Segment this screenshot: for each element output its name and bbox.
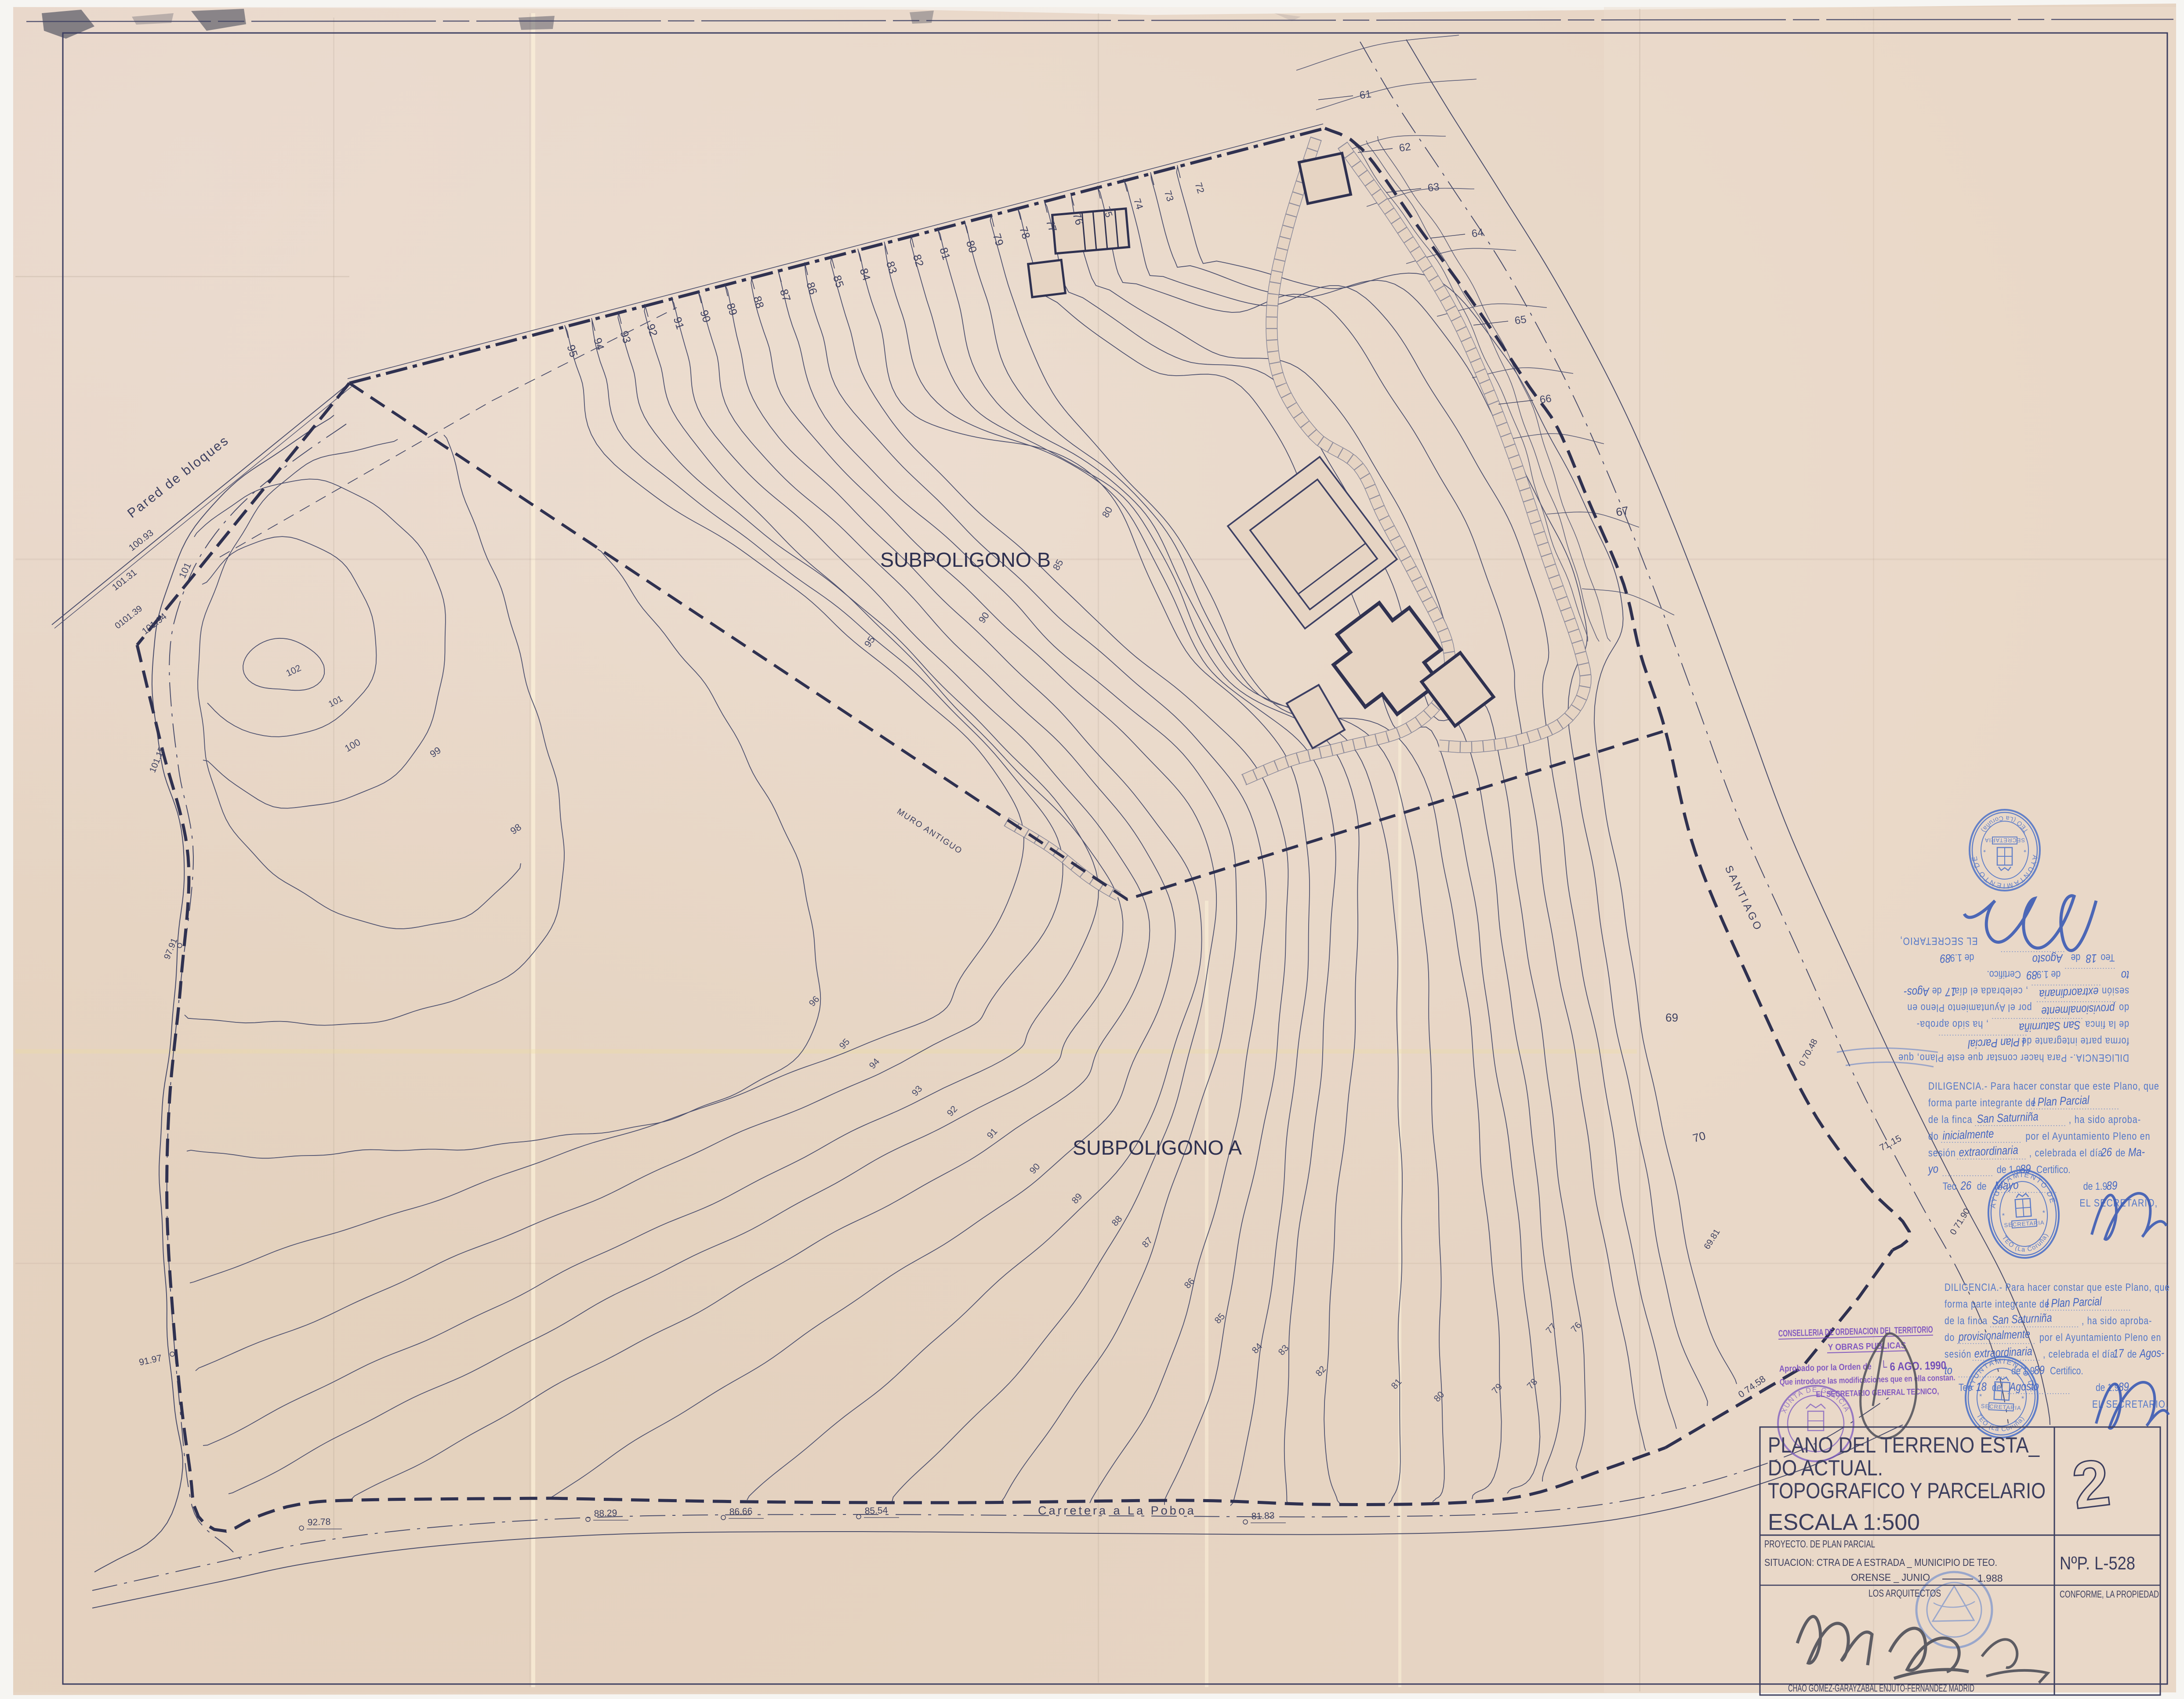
svg-text:San Saturniña: San Saturniña	[1977, 1110, 2039, 1126]
svg-text:*: *	[2002, 1212, 2005, 1220]
svg-text:*: *	[1979, 1393, 1982, 1400]
svg-text:de: de	[2071, 952, 2080, 964]
svg-text:l Plan Parcial: l Plan Parcial	[2046, 1295, 2102, 1310]
svg-text:Y OBRAS PUBLICAS: Y OBRAS PUBLICAS	[1828, 1340, 1906, 1352]
svg-text:NºP. L-528: NºP. L-528	[2060, 1553, 2135, 1573]
svg-text:sesión: sesión	[1928, 1147, 1956, 1159]
svg-text:Agosto: Agosto	[2009, 1380, 2039, 1394]
svg-text:Mayo: Mayo	[1995, 1179, 2019, 1193]
svg-text:*: *	[1983, 846, 1986, 853]
svg-text:18: 18	[2086, 951, 2097, 965]
svg-text:63: 63	[1427, 181, 1440, 194]
svg-text:de la finca: de la finca	[2085, 1019, 2129, 1031]
svg-text:San Saturniña: San Saturniña	[2019, 1018, 2081, 1033]
svg-text:26: 26	[1960, 1179, 1972, 1193]
svg-text:PROYECTO. DE PLAN PARCIAL: PROYECTO. DE PLAN PARCIAL	[1764, 1538, 1875, 1550]
svg-text:por el Ayuntamiento Pleno en: por el Ayuntamiento Pleno en	[1907, 1002, 2032, 1014]
svg-text:de la finca: de la finca	[1928, 1113, 1973, 1125]
svg-text:Certifico.: Certifico.	[1987, 969, 2021, 981]
svg-text:Teo: Teo	[1959, 1381, 1972, 1394]
svg-text:do: do	[2119, 1002, 2129, 1014]
svg-text:sesión: sesión	[2101, 985, 2129, 997]
svg-text:l Plan Parcial: l Plan Parcial	[1967, 1035, 2025, 1050]
svg-text:92.78: 92.78	[307, 1517, 330, 1528]
svg-text:DO ACTUAL.: DO ACTUAL.	[1768, 1456, 1883, 1480]
svg-text:17: 17	[1945, 985, 1956, 998]
svg-text:, celebrada el día: , celebrada el día	[2029, 1147, 2104, 1159]
svg-text:San Saturniña: San Saturniña	[1992, 1311, 2052, 1327]
svg-text:LOS ARQUITECTOS: LOS ARQUITECTOS	[1868, 1587, 1941, 1599]
svg-text:de: de	[1932, 985, 1942, 997]
svg-text:Ma-: Ma-	[2128, 1145, 2145, 1159]
svg-text:17: 17	[2113, 1347, 2124, 1361]
svg-text:62: 62	[1398, 141, 1411, 154]
svg-text:forma parte integrante de: forma parte integrante de	[1945, 1298, 2050, 1310]
svg-text:extraordinaria: extraordinaria	[2039, 985, 2099, 1000]
svg-text:18: 18	[1976, 1380, 1987, 1394]
svg-text:SITUACION: CTRA DE A ESTRA: SITUACION: CTRA DE A ESTRADA _ MUNICIPIO…	[1764, 1557, 1997, 1568]
svg-text:89: 89	[2034, 1364, 2045, 1377]
svg-text:de: de	[2127, 1348, 2137, 1360]
svg-text:*: *	[2024, 846, 2026, 853]
svg-text:inicialmente: inicialmente	[1942, 1127, 1994, 1142]
svg-text:Certifico.: Certifico.	[2050, 1365, 2083, 1377]
svg-text:de: de	[1977, 1180, 1987, 1192]
svg-text:de 1.9: de 1.9	[2083, 1180, 2108, 1192]
svg-text:69: 69	[1665, 1011, 1678, 1024]
svg-text:, celebrada el día: , celebrada el día	[1954, 985, 2028, 997]
svg-text:85.54: 85.54	[864, 1505, 888, 1516]
svg-text:DILIGENCIA.- Para hacer consta: DILIGENCIA.- Para hacer constar que este…	[1928, 1080, 2159, 1092]
svg-text:Teo: Teo	[2101, 952, 2115, 964]
svg-text:Agos-: Agos-	[2139, 1346, 2165, 1360]
svg-text:89: 89	[2106, 1179, 2118, 1193]
svg-text:*: *	[2021, 1395, 2024, 1402]
svg-text:ORENSE _ JUNIO: ORENSE _ JUNIO	[1851, 1572, 1930, 1583]
svg-text:de: de	[2115, 1147, 2125, 1159]
svg-text:extraordinaria: extraordinaria	[1974, 1345, 2032, 1361]
svg-text:do: do	[1928, 1130, 1939, 1142]
svg-text:de: de	[1992, 1381, 2001, 1394]
svg-text:extraordinaria: extraordinaria	[1959, 1144, 2018, 1159]
svg-text:Teo: Teo	[1943, 1180, 1957, 1192]
svg-text:SUBPOLIGONO B: SUBPOLIGONO B	[880, 548, 1051, 571]
svg-text:, ha sido aproba-: , ha sido aproba-	[2069, 1113, 2141, 1125]
svg-text:PLANO DEL TERRENO ESTA_: PLANO DEL TERRENO ESTA_	[1768, 1433, 2040, 1457]
svg-text:de 1.9: de 1.9	[1997, 1163, 2021, 1175]
svg-text:89: 89	[1940, 951, 1951, 965]
svg-text:, celebrada el día: , celebrada el día	[2043, 1348, 2115, 1360]
svg-text:Carretera a La Poboa: Carretera a La Poboa	[1038, 1504, 1196, 1517]
svg-text:67: 67	[1615, 504, 1630, 519]
svg-text:por el Ayuntamiento Pleno en: por el Ayuntamiento Pleno en	[2039, 1331, 2161, 1344]
svg-text:Agos-: Agos-	[1904, 985, 1930, 999]
svg-text:to: to	[2121, 968, 2129, 981]
svg-text:TOPOGRAFICO Y PARCELARIO: TOPOGRAFICO Y PARCELARIO	[1768, 1478, 2046, 1503]
svg-text:1.988: 1.988	[1977, 1572, 2003, 1584]
svg-text:EL SECRETARIO,: EL SECRETARIO,	[1900, 935, 1978, 947]
svg-text:*: *	[2042, 1210, 2045, 1217]
svg-text:to: to	[1944, 1364, 1952, 1377]
svg-text:65: 65	[1514, 313, 1527, 326]
svg-text:yo: yo	[1927, 1163, 1939, 1176]
svg-text:sesión: sesión	[1945, 1348, 1971, 1360]
svg-text:81.83: 81.83	[1251, 1511, 1274, 1521]
svg-text:61: 61	[1359, 88, 1372, 101]
svg-text:de 1.9: de 1.9	[1950, 952, 1974, 964]
svg-text:SUBPOLIGONO A: SUBPOLIGONO A	[1073, 1136, 1242, 1159]
svg-text:do: do	[1945, 1331, 1955, 1344]
svg-text:ESCALA 1:500: ESCALA 1:500	[1768, 1510, 1920, 1535]
svg-text:forma parte integrante de: forma parte integrante de	[1928, 1097, 2036, 1109]
svg-text:88.29: 88.29	[594, 1508, 617, 1519]
svg-text:89: 89	[2020, 1163, 2031, 1176]
svg-text:64: 64	[1471, 226, 1484, 239]
svg-text:de 1.9: de 1.9	[2011, 1365, 2035, 1377]
svg-text:por el Ayuntamiento Pleno en: por el Ayuntamiento Pleno en	[2025, 1130, 2150, 1142]
svg-text:de 1.9: de 1.9	[2037, 969, 2061, 981]
svg-text:SECRETARIA: SECRETARIA	[1984, 837, 2025, 844]
svg-text:de la finca: de la finca	[1945, 1315, 1988, 1327]
svg-text:, ha sido aproba-: , ha sido aproba-	[1916, 1019, 1988, 1031]
svg-text:86.66: 86.66	[729, 1506, 752, 1517]
svg-text:CONFORME, LA PROPIEDAD: CONFORME, LA PROPIEDAD	[2060, 1589, 2159, 1600]
svg-text:89: 89	[2026, 968, 2038, 982]
svg-text:DILIGENCIA.- Para hacer consta: DILIGENCIA.- Para hacer constar que este…	[1898, 1052, 2129, 1064]
svg-text:26: 26	[2101, 1146, 2112, 1159]
svg-text:66: 66	[1539, 392, 1552, 406]
svg-text:Certifico.: Certifico.	[2036, 1163, 2071, 1175]
svg-text:, ha sido aproba-: , ha sido aproba-	[2082, 1315, 2152, 1327]
svg-text:DILIGENCIA.- Para hacer consta: DILIGENCIA.- Para hacer constar que este…	[1945, 1281, 2170, 1293]
svg-text:l Plan Parcial: l Plan Parcial	[2032, 1094, 2090, 1109]
svg-text:forma parte integrante de: forma parte integrante de	[2021, 1036, 2129, 1047]
svg-text:CHAO GOMEZ-GARAYZABAL ENJUTO: CHAO GOMEZ-GARAYZABAL ENJUTO-FERNANDEZ M…	[1788, 1682, 1974, 1694]
svg-text:Agosto: Agosto	[2032, 951, 2063, 966]
